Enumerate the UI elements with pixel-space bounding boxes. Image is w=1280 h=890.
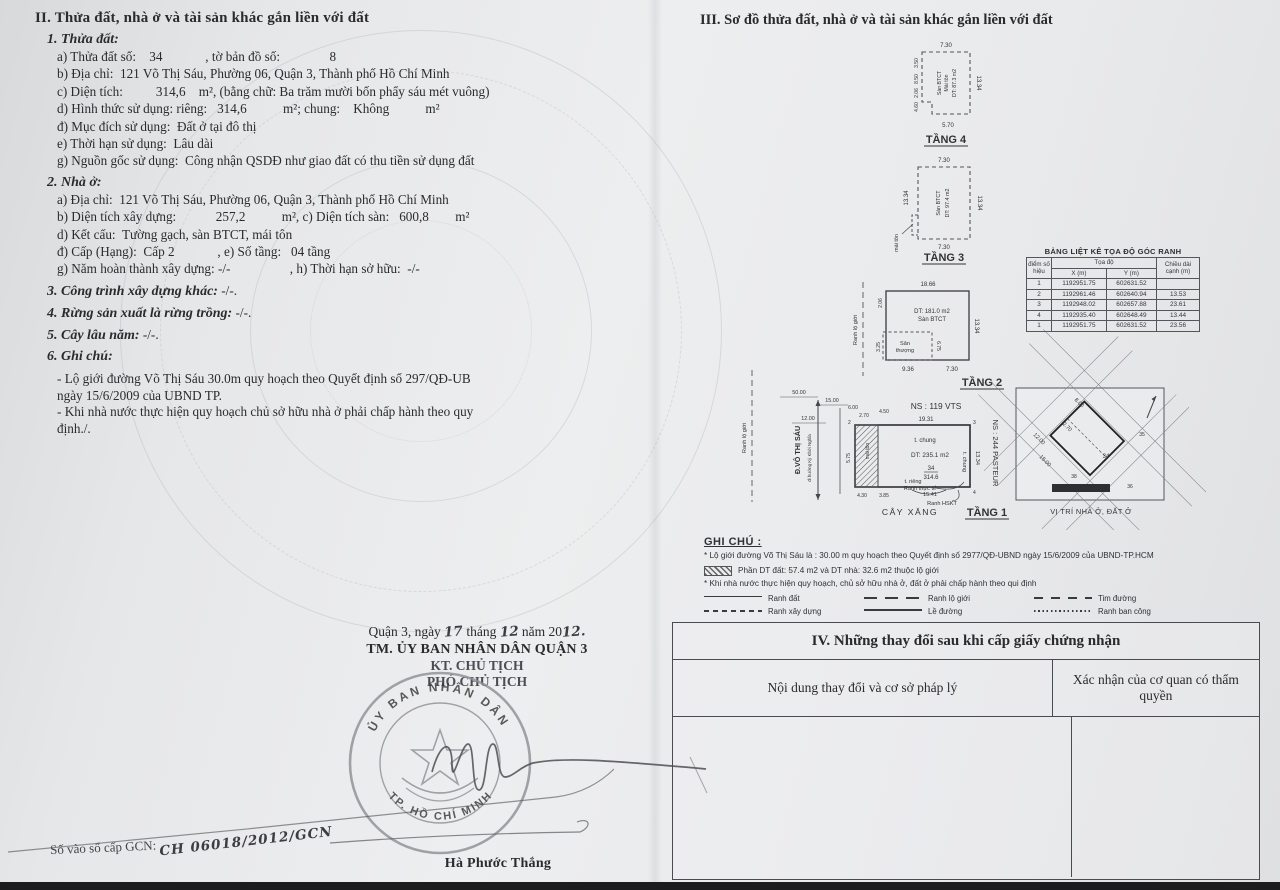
perennial-heading: 5. Cây lâu năm: -/-.: [47, 327, 650, 344]
cell-x: 1192948.02: [1052, 300, 1107, 311]
neighbor-label: NS : 244 PASTEUR: [991, 420, 1000, 487]
inset-caption: VỊ TRÍ NHÀ Ở, ĐẤT Ở: [1016, 507, 1166, 516]
col-coord: Tọa độ: [1052, 258, 1157, 269]
floor-material-label: Sàn BTCT: [918, 317, 946, 323]
legend-label: Ranh đất: [768, 594, 800, 603]
section-4-col2-header: Xác nhận của cơ quan có thẩm quyền: [1053, 660, 1259, 716]
ghi-chu-line: * Khi nhà nước thực hiện quy hoạch, chủ …: [704, 579, 1182, 590]
cell-length: 13.53: [1157, 289, 1200, 300]
official-stamp: ỦY BAN NHÂN DÂN TP. HỒ CHÍ MINH: [340, 668, 550, 858]
longdash-line-icon: [864, 597, 922, 598]
dashed-line-icon: [704, 610, 762, 611]
committee-line: TM. ỦY BAN NHÂN DÂN QUẬN 3: [322, 642, 632, 658]
parcel-number: 36: [1127, 484, 1133, 490]
land-line: c) Diện tích: 314,6 m², (bằng chữ: Ba tr…: [57, 83, 650, 100]
section-4-body: [673, 717, 1259, 877]
cell-length: 23.61: [1157, 300, 1200, 311]
heading-value: -/-.: [218, 283, 237, 298]
forest-heading: 4. Rừng sản xuất là rừng trồng: -/-.: [47, 305, 650, 322]
hatch-note-row: Phần DT đất: 57.4 m2 và DT nhà: 32.6 m2 …: [704, 566, 1182, 577]
shared-use-label: t. chung: [961, 452, 967, 472]
cell-point: 3: [1027, 300, 1052, 311]
parcel-number: 38: [1071, 474, 1077, 480]
stamp-star-icon: [412, 730, 468, 784]
certificate-page: II. Thửa đất, nhà ở và tài sản khác gắn …: [0, 0, 1280, 890]
house-line: a) Địa chỉ: 121 Võ Thị Sáu, Phường 06, Q…: [57, 191, 650, 208]
ghi-chu-block: GHI CHÚ : * Lộ giới đường Võ Thị Sáu là …: [704, 536, 1182, 616]
note-line: - Khi nhà nước thực hiện quy hoạch chủ s…: [57, 404, 650, 438]
dim-label: 18.66: [920, 282, 936, 288]
floor-area-label: DT: 235.1 m2: [911, 452, 949, 459]
corner-point: 4: [973, 490, 976, 496]
dim-label: 13.34: [976, 195, 982, 211]
dim-label: 19.31: [918, 417, 934, 423]
cell-point: 4: [1027, 310, 1052, 321]
dim-label: 15.00: [1038, 454, 1052, 468]
cell-point: 1: [1027, 279, 1052, 290]
notes-heading: 6. Ghi chú:: [47, 349, 650, 365]
ghi-chu-heading: GHI CHÚ :: [704, 536, 1182, 548]
dim-label: 2.06: [878, 298, 884, 308]
cell-x: 1192935.40: [1052, 310, 1107, 321]
year-label: năm 20: [522, 624, 562, 639]
dim-label: 13.34: [975, 75, 981, 91]
cell-x: 1192961.46: [1052, 289, 1107, 300]
cell-y: 602631.52: [1106, 279, 1156, 290]
legend-label: Ranh xây dựng: [768, 607, 821, 616]
dim-label: 6.00: [848, 405, 858, 411]
date-line: Quận 3, ngày 17 tháng 12 năm 2012.: [322, 624, 632, 640]
dim-label: 9.36: [902, 367, 914, 373]
col-y: Y (m): [1106, 268, 1156, 279]
floor-title: TẦNG 4: [926, 133, 967, 146]
coordinate-table-title: BẢNG LIỆT KÊ TỌA ĐỘ GÓC RANH: [1026, 247, 1200, 256]
section-3-title: III. Sơ đồ thửa đất, nhà ở và tài sản kh…: [700, 12, 1260, 29]
solid-line-icon: [704, 596, 762, 600]
dotted-line-icon: [1034, 610, 1092, 612]
section-4: IV. Những thay đổi sau khi cấp giấy chứn…: [672, 622, 1260, 880]
section-4-title: IV. Những thay đổi sau khi cấp giấy chứn…: [673, 623, 1259, 660]
dim-label: 7.30: [938, 245, 950, 251]
corner-point: 3: [973, 420, 976, 426]
actual-boundary-label: Ranh thực tế: [904, 486, 937, 492]
north-arrow-icon: [1152, 396, 1157, 402]
legend-item: Tim đường: [1034, 594, 1174, 603]
cell-point: 2: [1027, 289, 1052, 300]
parcel-number: 34: [1103, 454, 1110, 460]
dim-label: 13.34: [973, 318, 979, 334]
dim-label: 8.00: [1073, 397, 1085, 409]
book-number-label: Số vào sổ cấp GCN:: [50, 838, 157, 858]
col-x: X (m): [1052, 268, 1107, 279]
section-2-title: II. Thửa đất, nhà ở và tài sản khác gắn …: [35, 10, 650, 27]
house-line: d) Kết cấu: Tường gạch, sàn BTCT, mái tô…: [57, 226, 650, 243]
table-row: 11192951.75602631.52: [1027, 279, 1200, 290]
note-line: - Lộ giới đường Võ Thị Sáu 30.0m quy hoạ…: [57, 371, 650, 405]
signer-name: Hà Phước Thắng: [408, 856, 588, 872]
dim-label: 4.60: [914, 102, 920, 112]
section-2: II. Thửa đất, nhà ở và tài sản khác gắn …: [35, 10, 650, 438]
floor-material-label: Mái tôn: [944, 74, 950, 91]
corner-point: 2: [848, 420, 851, 426]
thick-line-icon: [864, 609, 922, 614]
parcel-number: 34: [928, 466, 935, 472]
year-handwritten: 12.: [562, 623, 587, 641]
gcn-book-number: Số vào sổ cấp GCN: CH 06018/2012/GCN: [50, 830, 334, 858]
land-line: g) Nguồn gốc sử dụng: Công nhận QSDĐ như…: [57, 152, 650, 169]
dim-label: 3.50: [914, 58, 920, 68]
legend-item: Ranh ban công: [1034, 607, 1174, 616]
legend-item: Ranh xây dựng: [704, 607, 864, 616]
land-line: d) Hình thức sử dụng: riêng: 314,6 m²; c…: [57, 100, 650, 117]
plan-tang-4: 7.30 13.34 5.70 3.50 8.50 2.06 4.60 Sàn …: [914, 43, 981, 146]
heading-value: -/-.: [232, 305, 251, 320]
hatch-swatch-icon: [704, 566, 732, 576]
cell-y: 602657.88: [1106, 300, 1156, 311]
heading-value: -/-.: [140, 327, 159, 342]
section-4-col1-header: Nội dung thay đổi và cơ sở pháp lý: [673, 660, 1053, 716]
heading-label: 3. Công trình xây dựng khác:: [47, 284, 218, 299]
neighbor-label: NS : 119 VTS: [911, 401, 962, 411]
book-number-handwritten: CH 06018/2012/GCN: [159, 824, 334, 860]
floor-area-label: DT: 87.3 m2: [952, 69, 958, 97]
cell-length: 13.44: [1157, 310, 1200, 321]
legend-item: Lề đường: [864, 607, 1034, 616]
legend-item: Ranh đất: [704, 594, 864, 603]
land-line: b) Địa chỉ: 121 Võ Thị Sáu, Phường 06, Q…: [57, 65, 650, 82]
other-construction-heading: 3. Công trình xây dựng khác: -/-.: [47, 283, 650, 300]
floor-title: TẦNG 3: [924, 251, 964, 264]
cell-y: 602631.52: [1106, 321, 1156, 332]
dim-label: 2.06: [914, 88, 920, 98]
land-line: e) Thời hạn sử dụng: Lâu dài: [57, 135, 650, 152]
heading-label: 4. Rừng sản xuất là rừng trồng:: [47, 306, 232, 321]
house-heading: 2. Nhà ở:: [47, 175, 650, 191]
dim-label: 4.30: [857, 493, 867, 499]
plan-tang-3: 7.30 13.34 7.30 13.34 Sàn BTCT DT: 97.4 …: [894, 158, 982, 264]
dim-label: 6.75: [935, 341, 941, 351]
parcel-area: 314.6: [923, 475, 939, 481]
floor-title: TẦNG 2: [962, 376, 1002, 389]
stamp-bottom-text: TP. HỒ CHÍ MINH: [386, 789, 495, 823]
cell-point: 1: [1027, 321, 1052, 332]
day-handwritten: 17: [444, 623, 464, 640]
notes-block: - Lộ giới đường Võ Thị Sáu 30.0m quy hoạ…: [57, 371, 650, 438]
coordinate-table: BẢNG LIỆT KÊ TỌA ĐỘ GÓC RANH điểm số hiệ…: [1026, 247, 1200, 332]
dim-label: 12.00: [1032, 432, 1046, 446]
terrace-label: thượng: [896, 348, 914, 354]
plan-tang-2: Ranh lộ giới 18.66 13.34 9.36 7.30 2.06 …: [853, 282, 1004, 389]
dim-label: 5.75: [846, 453, 852, 463]
dash-line-icon: [1034, 597, 1092, 598]
dim-label: 2.70: [1061, 421, 1073, 433]
dim-label: 7.30: [946, 367, 958, 373]
land-line: a) Thửa đất số: 34 , tờ bản đồ số: 8: [57, 48, 650, 65]
dim-label: 5.70: [942, 123, 954, 129]
cell-length: 23.56: [1157, 321, 1200, 332]
hatch-note: Phần DT đất: 57.4 m2 và DT nhà: 32.6 m2 …: [738, 566, 939, 577]
dim-label: 3.25: [876, 342, 882, 352]
house-line: đ) Cấp (Hạng): Cấp 2 , e) Số tầng: 04 tầ…: [57, 243, 650, 260]
dim-label: 12.00: [801, 416, 815, 422]
line-legend: Ranh đất Ranh lộ giới Tim đường Ranh xây…: [704, 594, 1182, 616]
dim-label: 8.50: [914, 74, 920, 84]
page-fold: [648, 0, 662, 890]
table-row: 21192961.46602640.9413.53: [1027, 289, 1200, 300]
street-name-label: Đ.VÔ THỊ SÁU: [793, 426, 802, 474]
dim-label: 7.30: [938, 158, 950, 164]
cell-x: 1192951.75: [1052, 321, 1107, 332]
ghi-chu-line: * Lộ giới đường Võ Thị Sáu là : 30.00 m …: [704, 551, 1182, 562]
street-name-plate: [1052, 484, 1110, 492]
cell-length: [1157, 279, 1200, 290]
legend-item: Ranh lộ giới: [864, 594, 1034, 603]
dim-label: 2.70: [859, 413, 869, 419]
land-heading: 1. Thửa đất:: [47, 32, 650, 48]
floor-material-label: Sàn BTCT: [937, 70, 943, 95]
legend-label: Lề đường: [928, 607, 962, 616]
house-line: b) Diện tích xây dựng: 257,2 m², c) Diện…: [57, 208, 650, 225]
terrace-label: Sân: [900, 341, 910, 347]
private-use-label: t. riêng: [904, 479, 921, 485]
place-label: Quận 3, ngày: [368, 624, 440, 639]
floor-area-label: DT: 97.4 m2: [945, 188, 951, 217]
col-length: Chiều dài cạnh (m): [1157, 258, 1200, 279]
floor-title: TẦNG 1: [967, 506, 1007, 519]
heading-label: 5. Cây lâu năm:: [47, 328, 140, 343]
plan-tang-1: Ranh lộ giới Đ.VÔ THỊ SÁU đi hướng Kỳ Kh…: [742, 370, 1009, 519]
street-direction-note: đi hướng Kỳ Khởi Nghĩa: [807, 434, 812, 482]
dim-label: 4.50: [879, 409, 889, 415]
cell-x: 1192951.75: [1052, 279, 1107, 290]
month-handwritten: 12: [499, 623, 519, 640]
legend-label: Ranh lộ giới: [928, 594, 970, 603]
cell-y: 602648.49: [1106, 310, 1156, 321]
floor-material-label: Sàn BTCT: [936, 190, 942, 216]
land-line: đ) Mục đích sử dụng: Đất ở tại đô thị: [57, 118, 650, 135]
dim-label: 3.85: [879, 493, 889, 499]
scan-edge: [0, 882, 1280, 890]
legend-label: Ranh ban công: [1098, 607, 1151, 616]
dim-label: 13.34: [904, 190, 910, 206]
month-label: tháng: [466, 624, 496, 639]
roof-note-label: mái tôn: [865, 443, 871, 460]
table-row: 11192951.75602631.5223.56: [1027, 321, 1200, 332]
cell-y: 602640.94: [1106, 289, 1156, 300]
boundary-label: Ranh lộ giới: [742, 423, 748, 453]
boundary-label: Ranh lộ giới: [853, 315, 859, 345]
col-point: điểm số hiệu: [1027, 258, 1052, 279]
floor-area-label: DT: 181.0 m2: [914, 309, 950, 315]
legend-label: Tim đường: [1098, 594, 1136, 603]
shared-use-label: t. chung: [914, 438, 935, 444]
dim-label: 13.34: [974, 451, 980, 465]
dim-label: 7.30: [940, 43, 952, 49]
hskt-boundary-label: Ranh HSKT: [927, 501, 957, 507]
dim-label: 50.00: [792, 390, 806, 396]
parcel-number: 35: [1139, 432, 1145, 438]
table-row: 41192935.40602648.4913.44: [1027, 310, 1200, 321]
roof-note-label: mái tôn: [894, 234, 900, 252]
table-row: 31192948.02602657.8823.61: [1027, 300, 1200, 311]
section-4-body-col1: [673, 717, 1072, 877]
gas-station-label: CÂY XĂNG: [882, 507, 938, 517]
house-line: g) Năm hoàn thành xây dựng: -/- , h) Thờ…: [57, 260, 650, 277]
dim-label: 15.00: [825, 398, 839, 404]
dim-label: 15.41: [923, 492, 937, 498]
